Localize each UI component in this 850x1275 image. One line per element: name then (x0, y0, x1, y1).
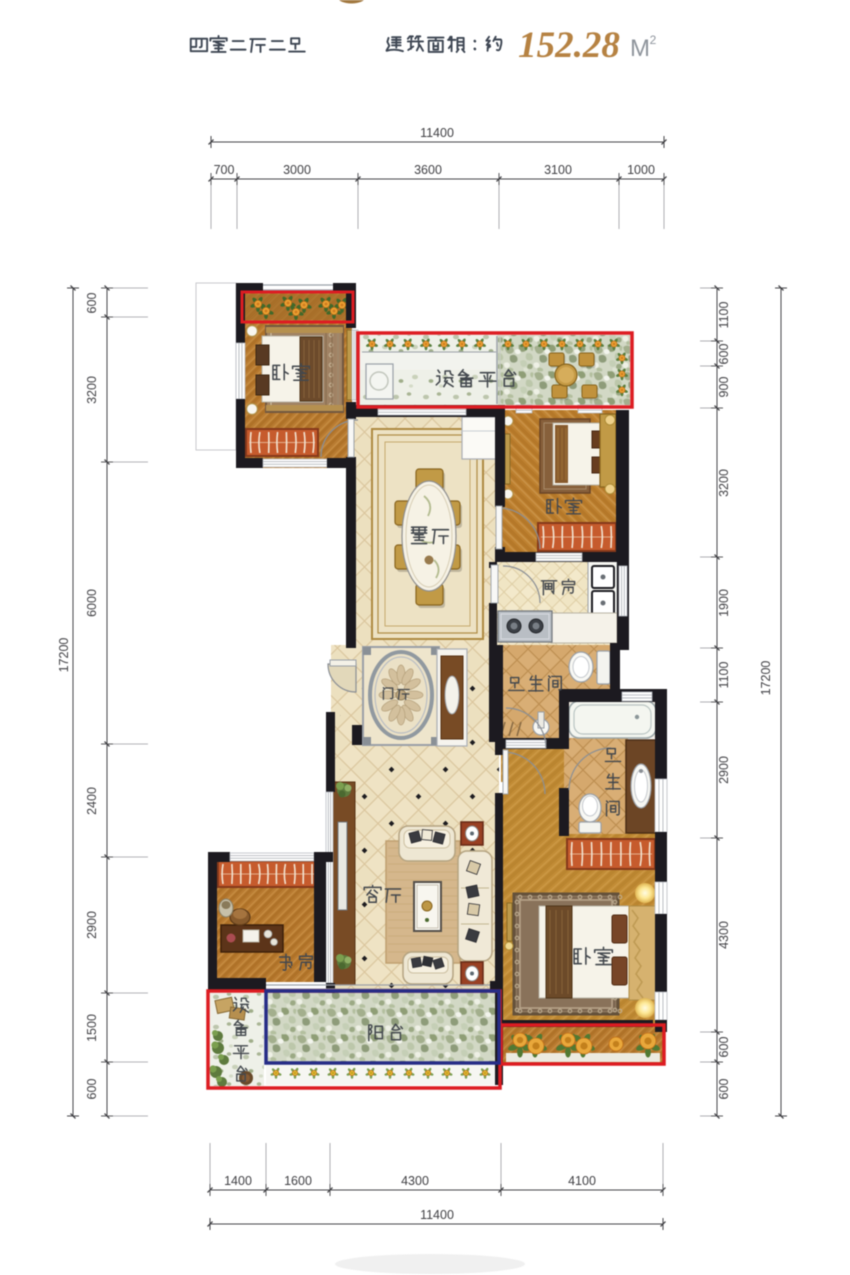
svg-text:1100: 1100 (717, 662, 731, 689)
svg-text:1600: 1600 (284, 1174, 312, 1188)
svg-text:11400: 11400 (420, 1208, 454, 1222)
svg-text:600: 600 (717, 344, 731, 365)
svg-text:600: 600 (85, 293, 99, 314)
svg-text:1100: 1100 (717, 302, 731, 329)
svg-text:3200: 3200 (85, 376, 99, 404)
svg-text:2400: 2400 (85, 787, 99, 815)
svg-text:2900: 2900 (717, 756, 731, 784)
svg-text:600: 600 (717, 1037, 731, 1058)
svg-text:1400: 1400 (224, 1174, 252, 1188)
svg-text:4300: 4300 (717, 921, 731, 949)
svg-text:1000: 1000 (627, 163, 655, 177)
svg-text:600: 600 (85, 1079, 99, 1100)
svg-text:4300: 4300 (401, 1174, 429, 1188)
svg-text:17200: 17200 (57, 638, 71, 673)
svg-text:3000: 3000 (283, 163, 311, 177)
svg-text:700: 700 (214, 163, 235, 177)
svg-text:2900: 2900 (85, 911, 99, 939)
svg-text:3100: 3100 (544, 163, 572, 177)
svg-text:1900: 1900 (717, 589, 731, 617)
svg-text:6000: 6000 (85, 589, 99, 617)
svg-text:4100: 4100 (568, 1174, 596, 1188)
svg-text:152.28: 152.28 (518, 25, 620, 66)
svg-text:1500: 1500 (85, 1014, 99, 1042)
svg-text:17200: 17200 (759, 661, 773, 696)
svg-text:M: M (630, 35, 650, 62)
svg-text:11400: 11400 (420, 126, 454, 140)
svg-text:3600: 3600 (414, 163, 442, 177)
svg-text:2: 2 (650, 33, 657, 47)
svg-text:3200: 3200 (717, 469, 731, 497)
svg-text:600: 600 (717, 1079, 731, 1100)
svg-text:900: 900 (717, 377, 731, 398)
